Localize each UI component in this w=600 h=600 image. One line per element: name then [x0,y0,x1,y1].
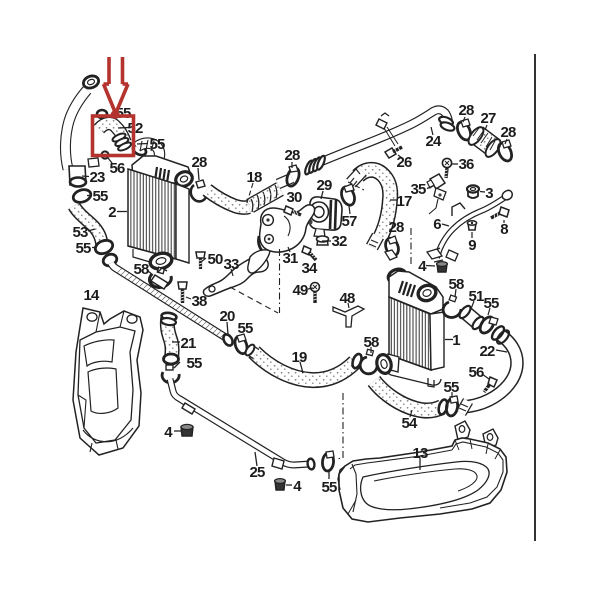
svg-text:53: 53 [72,224,88,241]
svg-text:29: 29 [316,177,332,194]
svg-text:57: 57 [341,213,357,230]
svg-text:31: 31 [282,250,298,267]
svg-text:55: 55 [92,188,108,205]
svg-text:24: 24 [425,133,442,150]
svg-text:25: 25 [249,464,265,481]
svg-text:21: 21 [180,335,196,352]
svg-text:55: 55 [237,320,253,337]
svg-text:48: 48 [339,290,355,307]
svg-text:2: 2 [108,204,116,221]
svg-text:28: 28 [191,154,207,171]
svg-text:14: 14 [83,287,100,304]
svg-text:28: 28 [500,124,516,141]
svg-text:58: 58 [448,276,464,293]
svg-text:49: 49 [292,282,308,299]
svg-text:55: 55 [321,479,337,496]
svg-text:56: 56 [109,160,125,177]
svg-text:36: 36 [458,156,474,173]
svg-text:23: 23 [89,169,105,186]
svg-text:51: 51 [468,288,484,305]
svg-text:58: 58 [133,261,149,278]
svg-text:55: 55 [149,136,165,153]
svg-text:20: 20 [219,308,235,325]
svg-text:18: 18 [246,169,262,186]
svg-text:22: 22 [479,343,495,360]
svg-text:13: 13 [412,445,428,462]
svg-text:35: 35 [410,181,426,198]
svg-text:38: 38 [191,293,207,310]
svg-text:58: 58 [363,334,379,351]
svg-text:9: 9 [468,237,476,254]
svg-text:26: 26 [396,154,412,171]
svg-text:33: 33 [223,256,239,273]
svg-text:55: 55 [186,355,202,372]
svg-text:56: 56 [468,364,484,381]
svg-text:50: 50 [207,251,223,268]
svg-text:34: 34 [301,260,318,277]
svg-text:27: 27 [480,110,496,127]
svg-text:6: 6 [433,216,441,233]
svg-text:1: 1 [452,332,460,349]
svg-text:28: 28 [458,102,474,119]
svg-text:55: 55 [75,240,91,257]
svg-text:28: 28 [284,147,300,164]
svg-text:54: 54 [401,415,418,432]
svg-text:28: 28 [388,219,404,236]
svg-text:55: 55 [483,295,499,312]
svg-text:32: 32 [331,233,347,250]
svg-text:30: 30 [286,189,302,206]
svg-text:55: 55 [443,379,459,396]
svg-text:19: 19 [291,349,307,366]
svg-text:8: 8 [500,221,508,238]
svg-text:3: 3 [485,185,493,202]
